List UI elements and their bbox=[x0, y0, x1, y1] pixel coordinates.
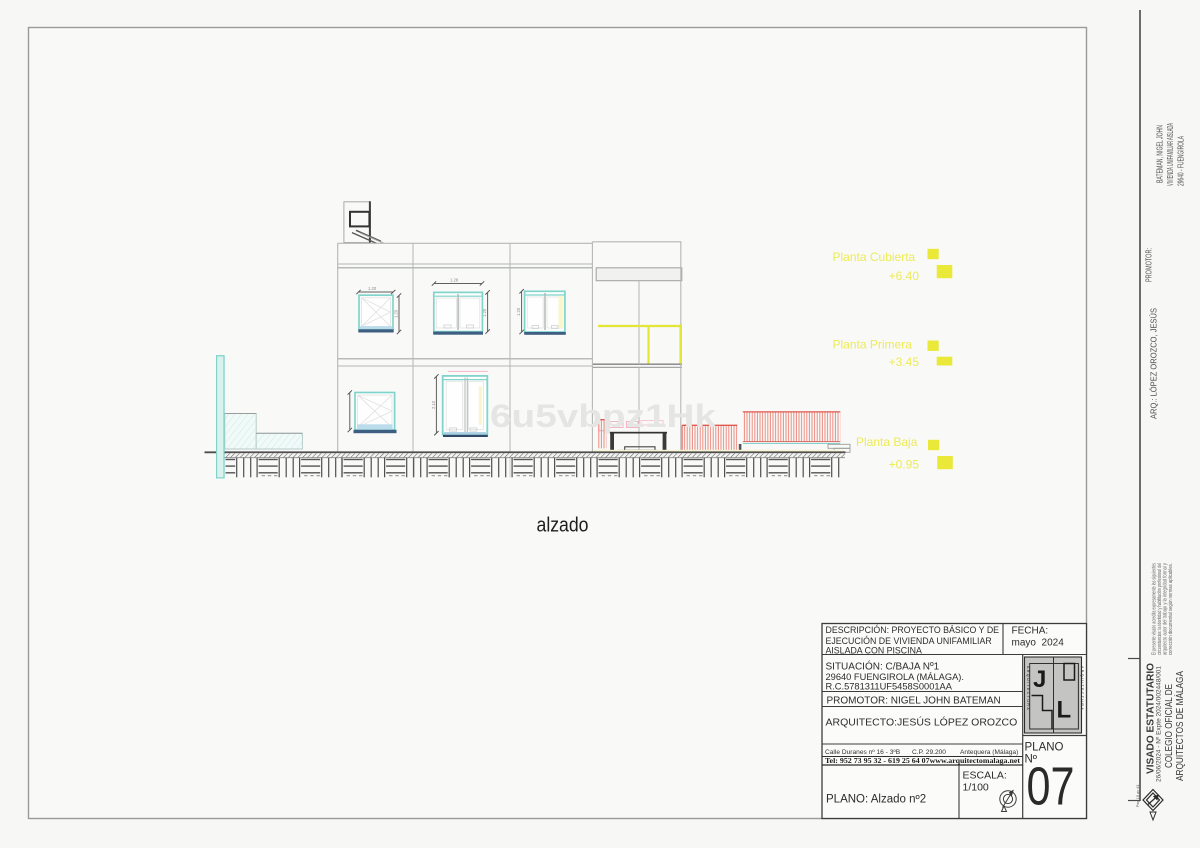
svg-text:J: J bbox=[1033, 666, 1046, 693]
svg-text:FECHA:: FECHA: bbox=[1012, 626, 1049, 637]
svg-text:AISLADA CON PISCINA: AISLADA CON PISCINA bbox=[826, 645, 922, 655]
svg-text:DESCRIPCIÓN: PROYECTO BÁSICO Y: DESCRIPCIÓN: PROYECTO BÁSICO Y DE bbox=[826, 625, 1000, 635]
svg-text:Antequera (Málaga): Antequera (Málaga) bbox=[960, 749, 1018, 756]
svg-text:Planta Cubierta: Planta Cubierta bbox=[833, 250, 916, 264]
svg-text:1.20: 1.20 bbox=[368, 286, 377, 291]
svg-text:+3.45: +3.45 bbox=[889, 355, 920, 369]
svg-text:Planta Primera: Planta Primera bbox=[833, 338, 913, 352]
svg-text:ARQUITECTURA: ARQUITECTURA bbox=[1026, 666, 1030, 711]
svg-text:PROMOTOR: NIGEL JOHN BATEMAN: PROMOTOR: NIGEL JOHN BATEMAN bbox=[827, 696, 1001, 707]
svg-text:VISADO ESTATUTARIO: VISADO ESTATUTARIO bbox=[1146, 663, 1157, 774]
svg-text:SITUACIÓN: C/BAJA Nº1: SITUACIÓN: C/BAJA Nº1 bbox=[826, 660, 940, 673]
svg-text:Tel: 952 73 95 32 - 619 25 64: Tel: 952 73 95 32 - 619 25 64 07www.arqu… bbox=[825, 756, 1020, 765]
svg-text:26/06/2024 - Nº Expte 2024/002: 26/06/2024 - Nº Expte 2024/002448/001 bbox=[1156, 665, 1163, 782]
svg-text:07: 07 bbox=[1027, 757, 1075, 817]
svg-text:mayo 2024: mayo 2024 bbox=[1012, 638, 1065, 649]
svg-text:corrección documental según no: corrección documental según normas aplic… bbox=[1168, 563, 1174, 655]
svg-text:ESCALA:: ESCALA: bbox=[963, 770, 1007, 782]
svg-text:29640 FUENGIROLA (MÁLAGA).: 29640 FUENGIROLA (MÁLAGA). bbox=[826, 672, 964, 682]
svg-text:BATEMAN, NIGEL JOHN: BATEMAN, NIGEL JOHN bbox=[1156, 125, 1165, 183]
svg-text:PROMOTOR:: PROMOTOR: bbox=[1145, 248, 1154, 282]
svg-text:1/100: 1/100 bbox=[963, 782, 989, 794]
svg-text:29640 - FUENGIROLA: 29640 - FUENGIROLA bbox=[1177, 136, 1186, 186]
svg-text:ARQ.: LÓPEZ OROZCO, JESÚS: ARQ.: LÓPEZ OROZCO, JESÚS bbox=[1150, 308, 1159, 419]
svg-text:6u5vbpz1Hk: 6u5vbpz1Hk bbox=[490, 398, 716, 434]
svg-text:PLANO: PLANO bbox=[1025, 742, 1064, 754]
svg-text:ARQUITECTOS DE MÁLAGA: ARQUITECTOS DE MÁLAGA bbox=[1173, 671, 1186, 781]
svg-text:alzado: alzado bbox=[537, 515, 589, 537]
svg-text:1.20: 1.20 bbox=[394, 309, 399, 318]
svg-text:COLEGIO OFICIAL DE: COLEGIO OFICIAL DE bbox=[1164, 684, 1175, 768]
svg-text:Planta Baja: Planta Baja bbox=[856, 435, 918, 449]
svg-text:1.28: 1.28 bbox=[450, 278, 459, 283]
svg-text:ARQUITECTO:JESÚS LÓPEZ OROZCO: ARQUITECTO:JESÚS LÓPEZ OROZCO bbox=[826, 716, 1018, 729]
svg-text:VIVIENDA UNIFAMILIAR AISLADA: VIVIENDA UNIFAMILIAR AISLADA bbox=[1166, 123, 1175, 186]
svg-text:PLANO: Alzado nº2: PLANO: Alzado nº2 bbox=[826, 794, 926, 806]
svg-text:+6.40: +6.40 bbox=[889, 269, 920, 283]
svg-text:2.10: 2.10 bbox=[431, 400, 436, 409]
svg-text:R.C.5781311UF5458S0001AA: R.C.5781311UF5458S0001AA bbox=[826, 681, 953, 691]
svg-text:+0.95: +0.95 bbox=[889, 458, 920, 472]
svg-text:1.20: 1.20 bbox=[516, 307, 521, 316]
svg-text:ARQUITECTURA: ARQUITECTURA bbox=[1080, 666, 1084, 711]
svg-text:C.P. 29.200: C.P. 29.200 bbox=[912, 749, 946, 756]
svg-text:L: L bbox=[1057, 697, 1072, 724]
svg-text:Pag 19 av 43: Pag 19 av 43 bbox=[1136, 785, 1140, 807]
svg-text:Calle Duranes nº 16 - 3ºB: Calle Duranes nº 16 - 3ºB bbox=[825, 749, 901, 756]
svg-text:1.20: 1.20 bbox=[482, 308, 487, 317]
